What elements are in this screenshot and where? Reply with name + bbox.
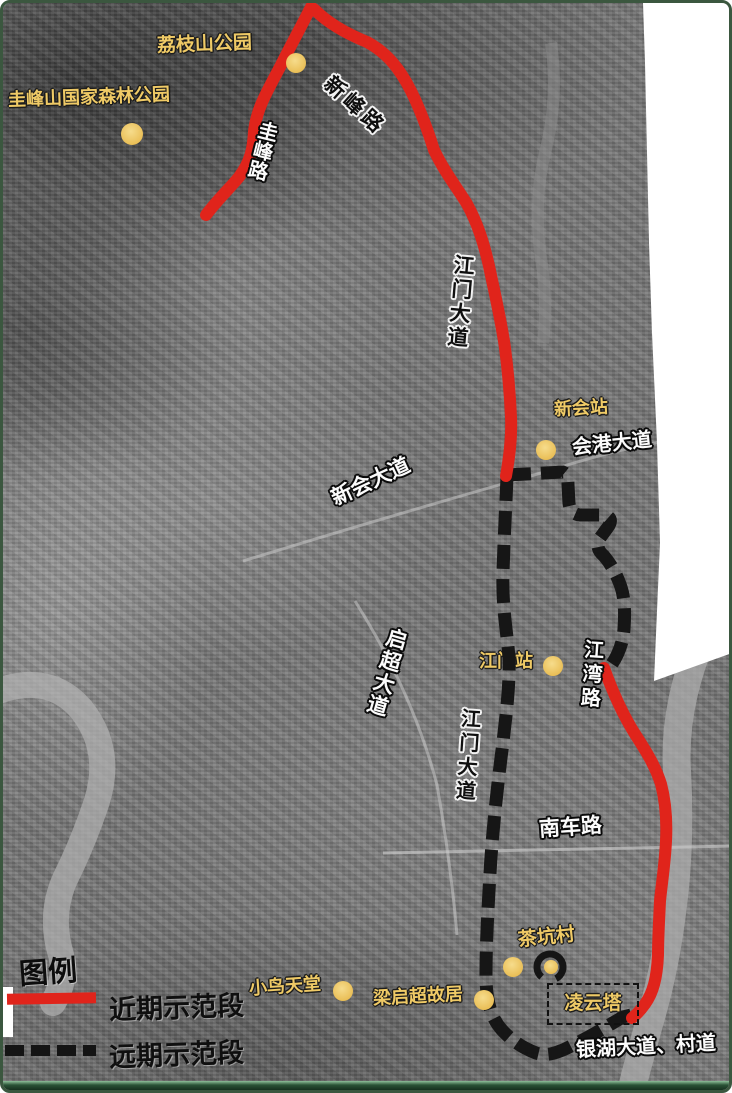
poi-dot-bird-paradise (333, 981, 353, 1001)
poi-dot-jiangmen-station (543, 656, 563, 676)
poi-label-xinhui-station: 新会站 (554, 398, 609, 420)
road-label-nanche-road: 南车路 (538, 815, 602, 841)
legend: 图例 近期示范段 远期示范段 (3, 943, 303, 1073)
lingyun-pagoda-box: 凌云塔 (547, 983, 639, 1025)
poi-dot-chakeng-village (544, 960, 558, 974)
poi-dot-lizhishan-park (286, 53, 306, 73)
legend-near-route-swatch (7, 992, 96, 1005)
road-line-qichao-avenue (355, 601, 457, 935)
route-near-north-section (206, 7, 511, 476)
river-north (538, 43, 554, 343)
route-far-east-branch (507, 472, 625, 672)
legend-far-route-label: 远期示范段 (108, 1031, 244, 1075)
legend-title: 图例 (18, 947, 79, 993)
poi-dot-chakeng-village-west (503, 957, 523, 977)
poi-label-lingyun-pagoda: 凌云塔 (564, 994, 621, 1014)
poi-label-lizhishan-park: 荔枝山公园 (157, 33, 253, 56)
map-overlay-layer (3, 3, 732, 1093)
map-bottom-frame (3, 1081, 729, 1090)
poi-dot-guifengshan-park (121, 123, 143, 145)
demonstration-route-map: 圭峰路 新峰路 江门大道 会港大道 新会大道 启超大道 江湾路 江门大道 南车路… (0, 0, 732, 1093)
poi-dot-xinhui-station (536, 440, 556, 460)
road-label-jiangwan-road: 江湾路 (577, 638, 603, 711)
legend-far-route-swatch (5, 1045, 96, 1056)
legend-near-route-label: 近期示范段 (108, 984, 244, 1028)
blank-region (643, 3, 732, 681)
poi-dot-liangqichao-residence (474, 990, 494, 1010)
route-near-south-section (604, 668, 666, 1018)
